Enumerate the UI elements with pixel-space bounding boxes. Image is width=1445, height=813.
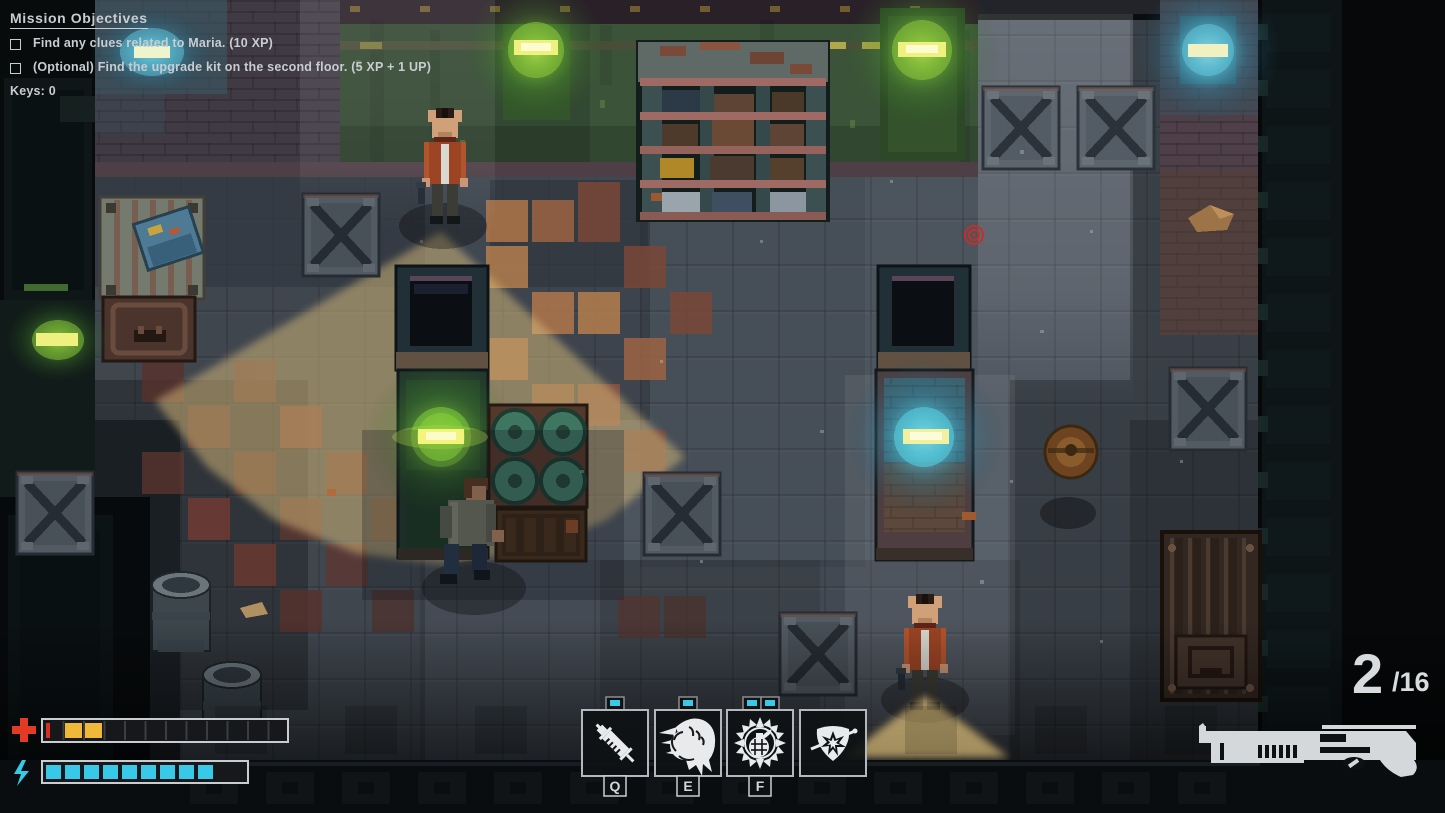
svg-text:E: E: [683, 778, 692, 794]
svg-text:Q: Q: [610, 778, 621, 794]
svg-text:F: F: [756, 778, 765, 794]
